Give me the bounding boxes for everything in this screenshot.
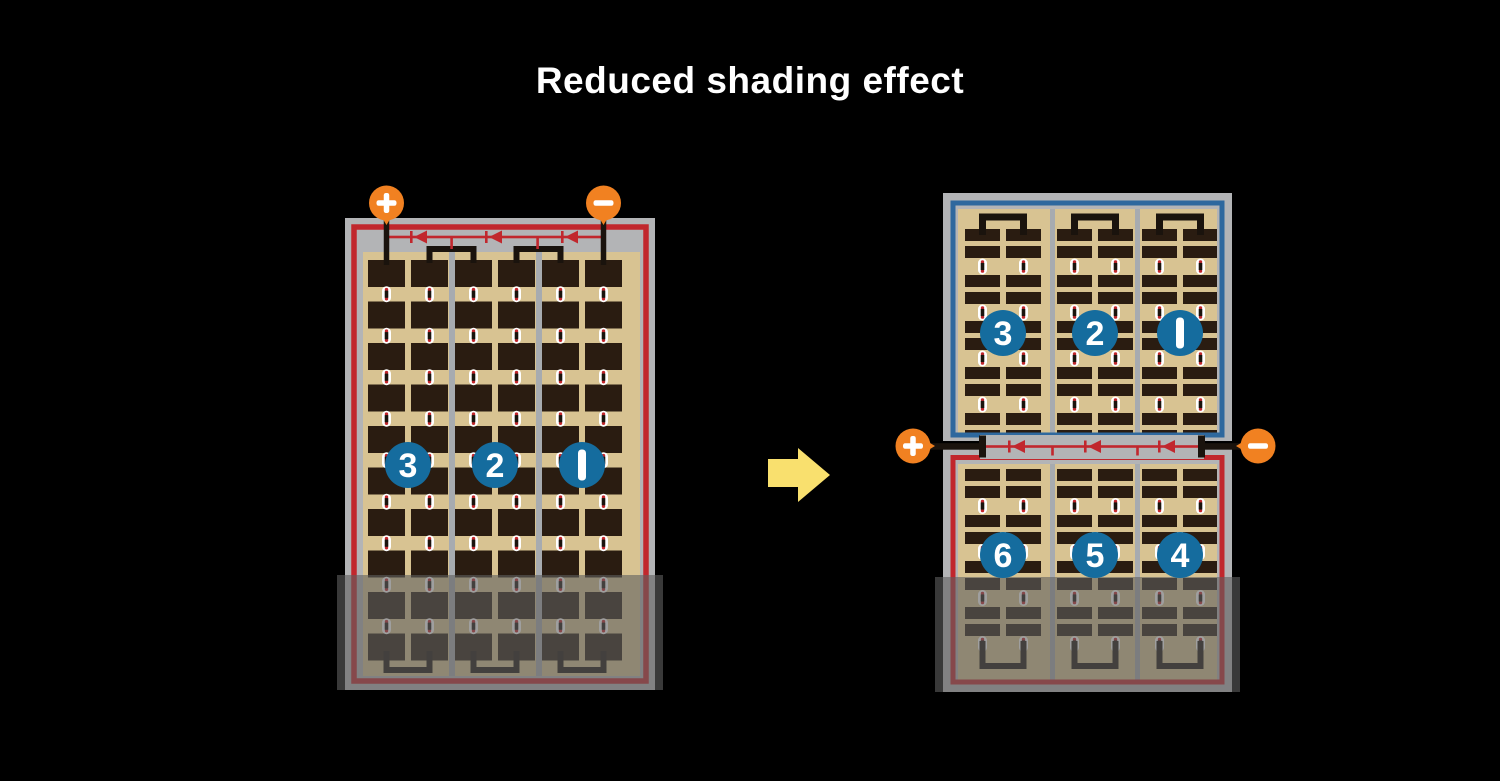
string-number-badge: 3 [980, 310, 1026, 356]
svg-text:3: 3 [994, 315, 1013, 353]
svg-text:2: 2 [486, 447, 505, 485]
top-string-badges: 32 [980, 310, 1203, 356]
string-number-badge: 3 [385, 442, 431, 488]
string-badges: 32 [385, 442, 605, 488]
string-number-badge: 5 [1072, 532, 1118, 578]
svg-text:3: 3 [399, 447, 418, 485]
string-number-badge: 2 [1072, 310, 1118, 356]
diagram-title: Reduced shading effect [0, 60, 1500, 102]
svg-text:4: 4 [1171, 537, 1190, 575]
shading-overlay [337, 575, 663, 690]
diagram-canvas: Reduced shading effect 32 32654 [0, 0, 1500, 781]
svg-text:2: 2 [1086, 315, 1105, 353]
string-number-badge: 4 [1157, 532, 1203, 578]
plus-terminal-icon [896, 429, 936, 464]
left-module-diagram: 32 [330, 183, 675, 698]
svg-text:5: 5 [1086, 537, 1105, 575]
transform-arrow [760, 440, 850, 510]
svg-text:6: 6 [994, 537, 1013, 575]
string-number-badge: 2 [472, 442, 518, 488]
shading-overlay [935, 577, 1240, 692]
string-number-badge [1157, 310, 1203, 356]
right-arrow-icon [768, 448, 830, 502]
string-number-badge [559, 442, 605, 488]
string-number-badge: 6 [980, 532, 1026, 578]
bottom-string-badges: 654 [980, 532, 1203, 578]
minus-terminal-icon [1236, 429, 1276, 464]
right-module-diagram: 32654 [890, 183, 1290, 698]
